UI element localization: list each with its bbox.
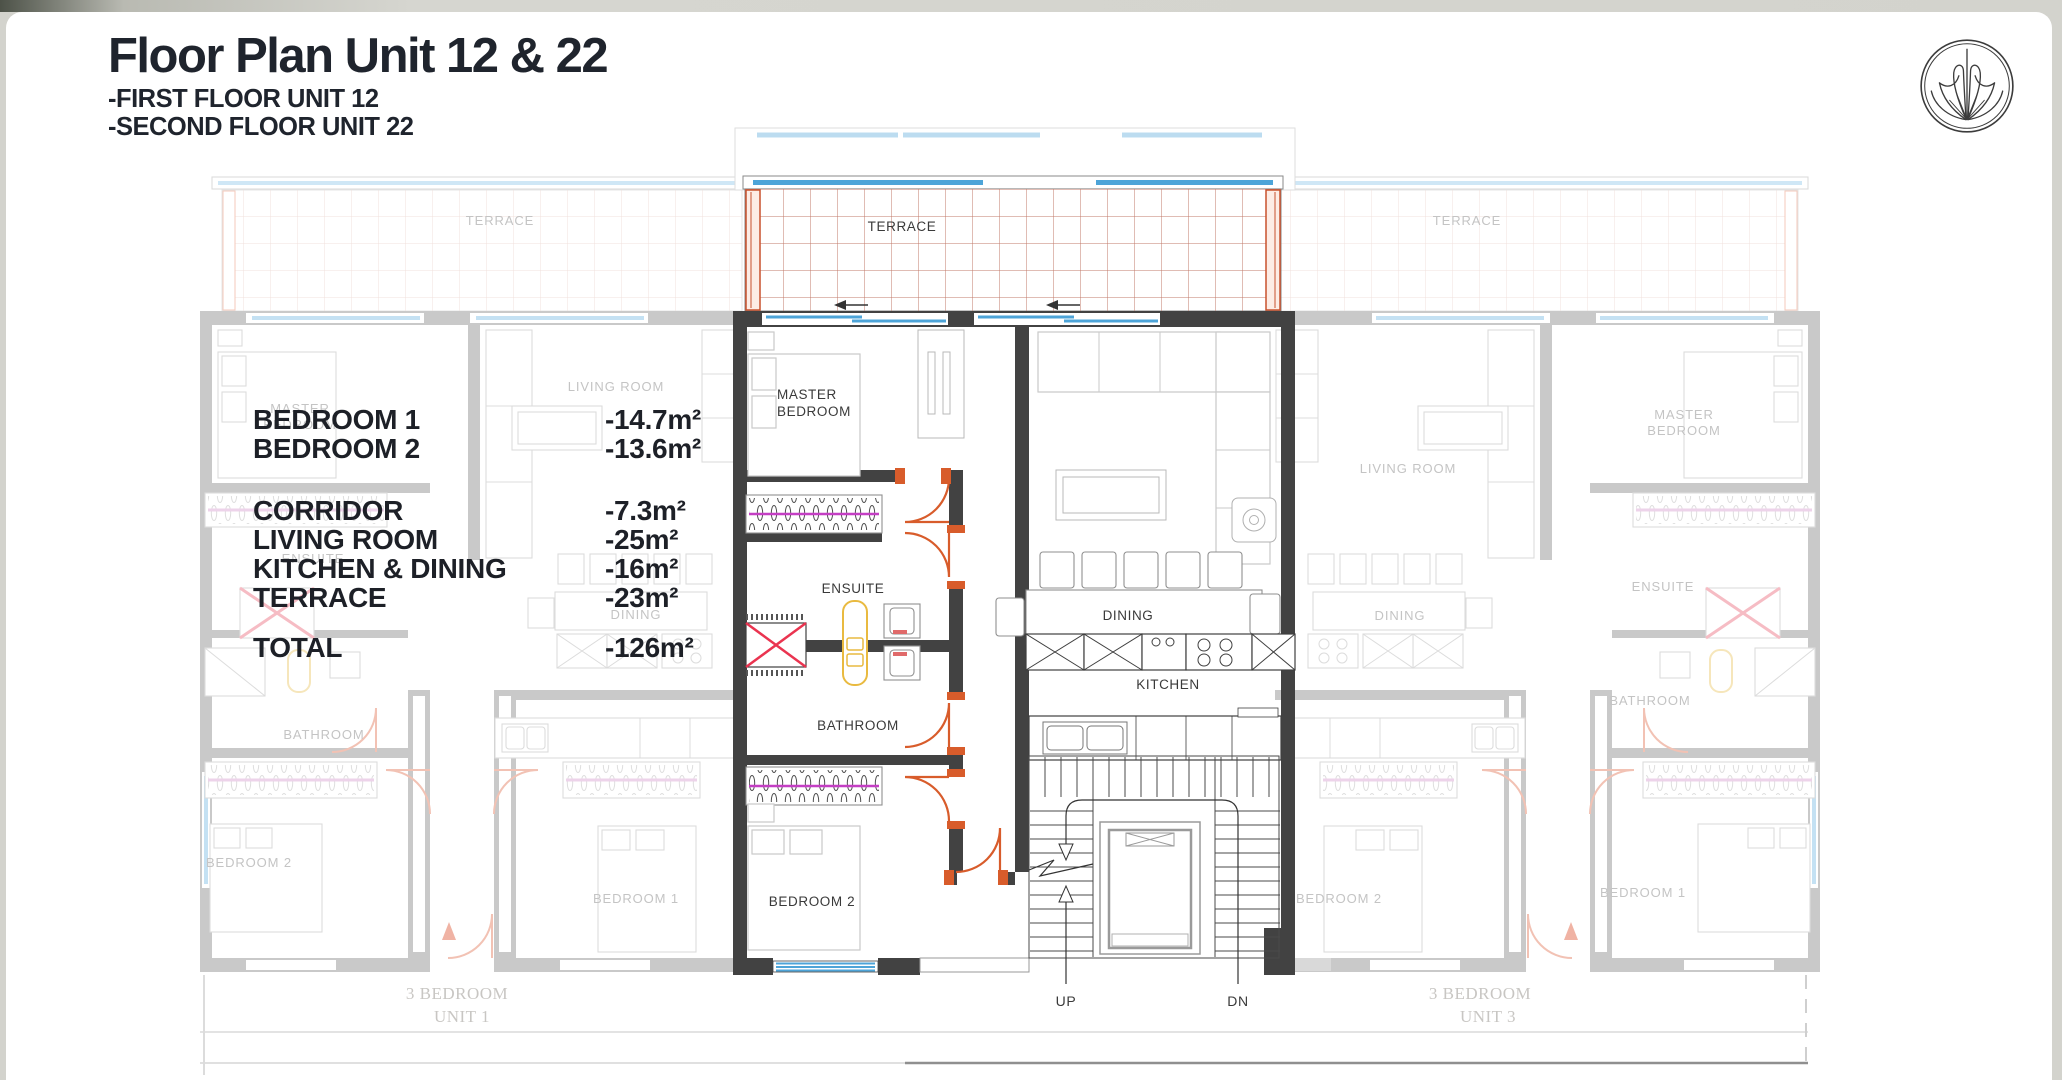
stairs-up-label: UP (1056, 993, 1077, 1009)
right-living-label: LIVING ROOM (1360, 461, 1457, 476)
area-label: BEDROOM 1 (253, 404, 605, 436)
page-subtitle-1: -FIRST FLOOR UNIT 12 (108, 86, 607, 114)
coffee-table (1056, 470, 1166, 520)
right-unit-caption-2: UNIT 3 (1460, 1007, 1516, 1026)
area-label: KITCHEN & DINING (253, 553, 605, 585)
left-bathroom-label: BATHROOM (283, 727, 364, 742)
center-unit: TERRACE MASTER BEDROOM ENSUITE BATHROOM … (733, 128, 1331, 1009)
area-value: -126m² (605, 632, 693, 664)
center-kitchen-label: KITCHEN (1136, 677, 1199, 692)
area-label: LIVING ROOM (253, 524, 605, 556)
water-heater (843, 601, 867, 685)
area-value: -13.6m² (605, 433, 701, 465)
unit-right-faded (1275, 177, 1820, 972)
left-bedroom1-label: BEDROOM 1 (593, 891, 679, 906)
area-table: BEDROOM 1 -14.7m² BEDROOM 2 -13.6m² CORR… (253, 404, 701, 661)
bedroom2-bed (748, 804, 860, 950)
right-dining-label: DINING (1375, 608, 1426, 623)
stairs-dn-label: DN (1227, 993, 1248, 1009)
area-label: CORRIDOR (253, 495, 605, 527)
area-row-corridor: CORRIDOR -7.3m² (253, 495, 701, 524)
area-row-bedroom2: BEDROOM 2 -13.6m² (253, 433, 701, 462)
dining-set (996, 552, 1280, 644)
area-row-living-room: LIVING ROOM -25m² (253, 524, 701, 553)
kitchen-counter (1029, 708, 1281, 760)
wardrobe-bedroom2 (746, 767, 882, 805)
center-dining-label: DINING (1103, 608, 1154, 623)
right-ensuite-label: ENSUITE (1632, 579, 1695, 594)
kitchen-island (1026, 634, 1295, 670)
center-terrace-label: TERRACE (868, 219, 937, 234)
wardrobe-master (746, 495, 882, 533)
area-row-total: TOTAL -126m² (253, 632, 701, 661)
page-header: Floor Plan Unit 12 & 22 -FIRST FLOOR UNI… (108, 26, 607, 141)
left-terrace-label: TERRACE (466, 213, 534, 228)
center-bedroom2-label: BEDROOM 2 (769, 894, 855, 909)
area-value: -23m² (605, 582, 678, 614)
page-subtitle-2: -SECOND FLOOR UNIT 22 (108, 114, 607, 142)
center-terrace (745, 189, 1281, 311)
center-bathroom-label: BATHROOM (817, 718, 899, 733)
area-row-terrace: TERRACE -23m² (253, 582, 701, 611)
area-value: -7.3m² (605, 495, 686, 527)
entry-cabinet (918, 330, 964, 438)
right-bedroom2-label: BEDROOM 2 (1296, 891, 1382, 906)
page-title: Floor Plan Unit 12 & 22 (108, 26, 607, 86)
center-master-label-1: MASTER (777, 387, 837, 402)
left-bedroom2-label: BEDROOM 2 (206, 855, 292, 870)
left-unit-caption-2: UNIT 1 (434, 1007, 490, 1026)
area-label: TOTAL (253, 632, 605, 664)
area-label: TERRACE (253, 582, 605, 614)
area-value: -16m² (605, 553, 678, 585)
left-unit-caption-1: 3 BEDROOM (406, 984, 508, 1003)
shaft (746, 617, 806, 673)
area-value: -14.7m² (605, 404, 701, 436)
center-ensuite-label: ENSUITE (822, 581, 885, 596)
right-bathroom-label: BATHROOM (1609, 693, 1690, 708)
right-bedroom1-label: BEDROOM 1 (1600, 885, 1686, 900)
area-value: -25m² (605, 524, 678, 556)
right-unit-caption-1: 3 BEDROOM (1429, 984, 1531, 1003)
area-label: BEDROOM 2 (253, 433, 605, 465)
elevator (1100, 822, 1200, 954)
left-living-label: LIVING ROOM (568, 379, 665, 394)
right-master-label-2: BEDROOM (1647, 423, 1720, 438)
floor-plan-page: { "header": { "title": "Floor Plan Unit … (0, 0, 2062, 1080)
center-master-label-2: BEDROOM (777, 404, 851, 419)
media-unit (1232, 498, 1276, 542)
right-terrace-label: TERRACE (1433, 213, 1501, 228)
area-row-bedroom1: BEDROOM 1 -14.7m² (253, 404, 701, 433)
palm-shell-logo-icon (1916, 33, 2018, 139)
area-row-kitchen-dining: KITCHEN & DINING -16m² (253, 553, 701, 582)
right-master-label-1: MASTER (1654, 407, 1714, 422)
